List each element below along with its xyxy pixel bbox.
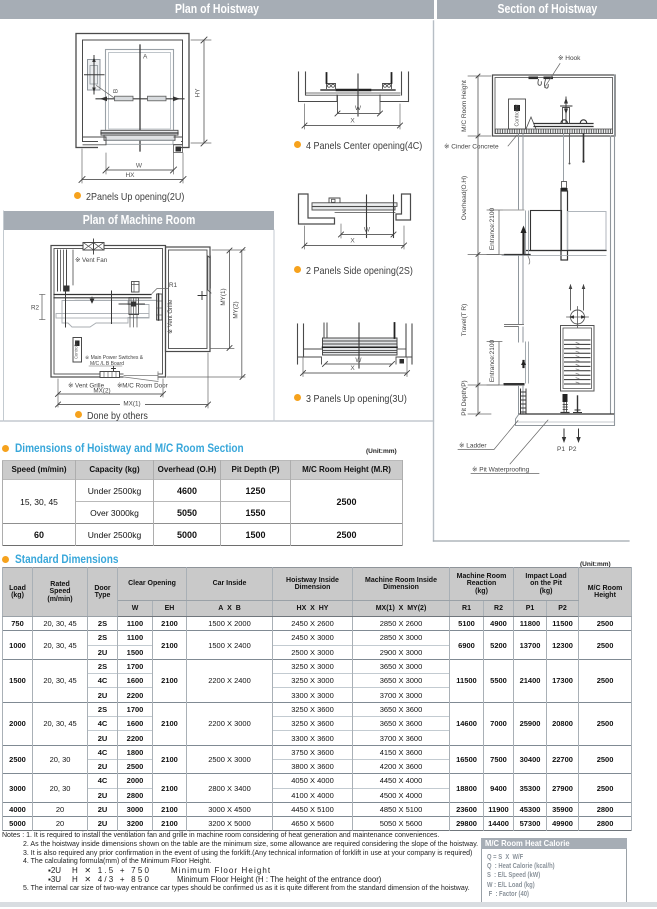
svg-text:P1 P2: P1 P2: [557, 446, 577, 453]
svg-text:MY(2): MY(2): [233, 301, 240, 318]
svg-text:MX(1): MX(1): [123, 401, 140, 408]
svg-text:Entrance:2100: Entrance:2100: [489, 339, 496, 382]
svg-text:R1: R1: [169, 282, 178, 289]
svg-text:※ Ladder: ※ Ladder: [459, 443, 487, 450]
svg-text:※ Vent Fan: ※ Vent Fan: [75, 257, 108, 264]
svg-text:Controller: Controller: [515, 104, 521, 127]
svg-text:※ Pit Waterproofing: ※ Pit Waterproofing: [472, 467, 530, 474]
svg-text:MX(2): MX(2): [93, 388, 110, 395]
svg-text:MY(1): MY(1): [220, 288, 227, 305]
svg-text:W: W: [364, 227, 371, 234]
svg-text:W: W: [136, 163, 143, 170]
svg-text:M/C Room Height: M/C Room Height: [461, 80, 468, 132]
svg-text:X: X: [350, 118, 355, 125]
svg-text:Pit Depth(P): Pit Depth(P): [461, 380, 468, 415]
svg-text:W: W: [355, 105, 362, 112]
svg-text:※ Vent Grille: ※ Vent Grille: [167, 299, 174, 334]
svg-text:X: X: [350, 238, 355, 245]
svg-text:※ Hook: ※ Hook: [558, 55, 581, 62]
svg-text:Controller: Controller: [74, 340, 79, 359]
svg-text:※M/C Room Door: ※M/C Room Door: [117, 383, 168, 390]
svg-text:X: X: [350, 365, 355, 372]
svg-text:A: A: [143, 54, 148, 61]
svg-text:※ Cinder Concrete: ※ Cinder Concrete: [444, 144, 499, 151]
svg-text:B: B: [113, 89, 120, 93]
svg-text:Overhead(O.H): Overhead(O.H): [461, 176, 468, 220]
svg-text:R2: R2: [31, 305, 40, 312]
svg-text:Entrance:2100: Entrance:2100: [489, 207, 496, 250]
svg-text:HY: HY: [195, 88, 202, 98]
svg-text:Travel(T R): Travel(T R): [461, 304, 468, 337]
svg-text:W: W: [355, 357, 362, 364]
svg-text:HX: HX: [125, 172, 135, 179]
